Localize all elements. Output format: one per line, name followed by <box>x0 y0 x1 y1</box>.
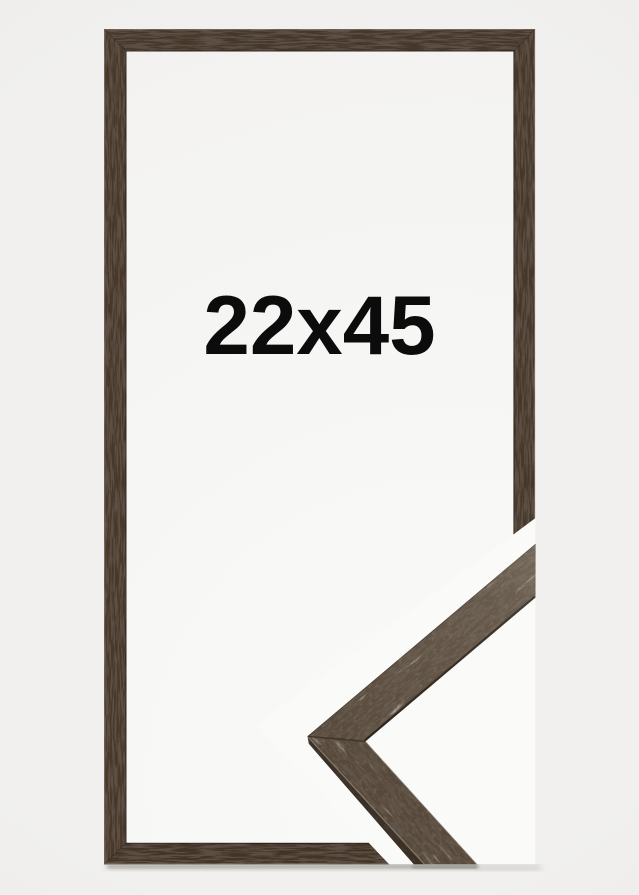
svg-text:22x45: 22x45 <box>203 278 435 372</box>
